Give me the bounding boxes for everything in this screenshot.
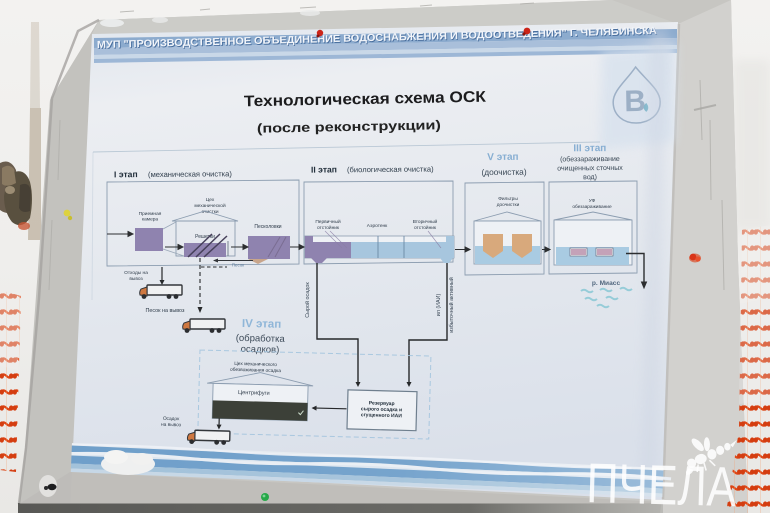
svg-text:отстойник: отстойник <box>317 224 340 231</box>
svg-text:р. Миасс: р. Миасс <box>592 280 621 287</box>
svg-text:(механическая очистка): (механическая очистка) <box>148 169 232 179</box>
svg-text:ил (ИАИ): ил (ИАИ) <box>436 294 442 317</box>
svg-text:Цех: Цех <box>206 197 215 203</box>
svg-text:отстойник: отстойник <box>414 224 437 231</box>
svg-text:В: В <box>624 85 646 118</box>
svg-text:камера: камера <box>142 218 159 223</box>
svg-text:Песколовки: Песколовки <box>254 224 281 230</box>
svg-text:IV этап: IV этап <box>242 318 282 331</box>
svg-text:сгущенного ИАИ: сгущенного ИАИ <box>361 412 403 419</box>
svg-text:V этап: V этап <box>487 152 518 163</box>
svg-text:вод): вод) <box>583 174 597 181</box>
svg-text:на вывоз: на вывоз <box>161 423 182 429</box>
svg-text:Аэротенк: Аэротенк <box>367 223 388 229</box>
svg-text:(обеззараживание: (обеззараживание <box>560 155 620 164</box>
svg-text:Фильтры: Фильтры <box>498 196 518 202</box>
svg-text:III этап: III этап <box>573 143 606 154</box>
svg-text:Песок: Песок <box>232 263 244 268</box>
svg-text:Вторичный: Вторичный <box>413 218 438 225</box>
svg-text:избыточный активный: избыточный активный <box>448 277 455 332</box>
svg-text:Приемная: Приемная <box>139 211 162 217</box>
svg-text:очищенных сточных: очищенных сточных <box>557 165 623 173</box>
svg-text:доочистки: доочистки <box>497 203 520 208</box>
svg-text:Осадок: Осадок <box>163 416 180 422</box>
svg-text:Центрифуги: Центрифуги <box>238 390 270 397</box>
svg-text:Первичный: Первичный <box>315 218 341 225</box>
svg-text:II этап: II этап <box>311 164 337 174</box>
svg-text:ПЧЕЛА: ПЧЕЛА <box>586 451 738 513</box>
svg-text:Песок на вывоз: Песок на вывоз <box>146 308 185 314</box>
svg-text:обеззараживание: обеззараживание <box>572 204 612 210</box>
svg-text:вывоз: вывоз <box>129 277 143 282</box>
svg-text:(доочистка): (доочистка) <box>481 167 526 177</box>
svg-text:Сырой осадок: Сырой осадок <box>304 282 311 318</box>
svg-text:(биологическая очистка): (биологическая очистка) <box>347 165 434 175</box>
svg-text:осадков): осадков) <box>241 344 280 356</box>
svg-text:Цех механического: Цех механического <box>234 361 277 368</box>
svg-text:Отходы на: Отходы на <box>124 270 148 276</box>
svg-text:УФ: УФ <box>589 198 596 204</box>
svg-text:I этап: I этап <box>114 169 138 179</box>
svg-text:механической: механической <box>194 202 226 209</box>
